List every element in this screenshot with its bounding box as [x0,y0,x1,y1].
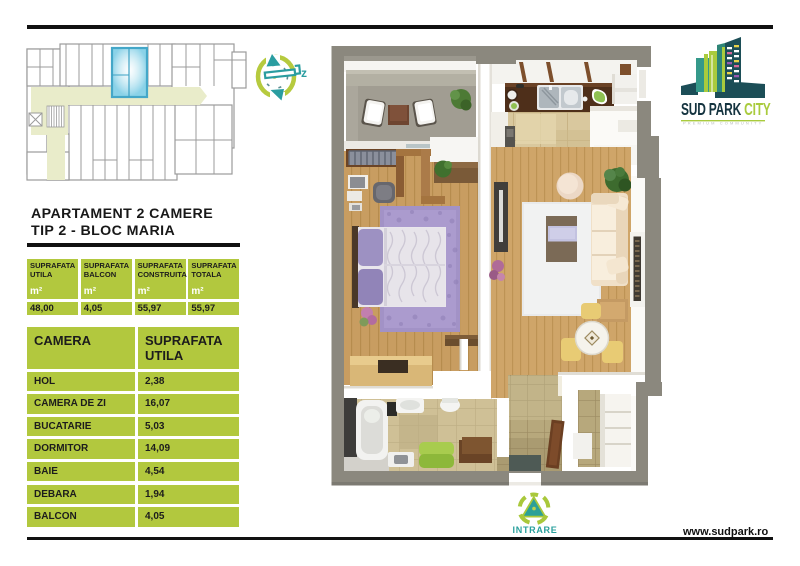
svg-text:z: z [301,66,307,80]
svg-text:PREMIUM COMMUNITY: PREMIUM COMMUNITY [683,121,763,126]
svg-text:SUD PARK CITY: SUD PARK CITY [681,100,771,120]
